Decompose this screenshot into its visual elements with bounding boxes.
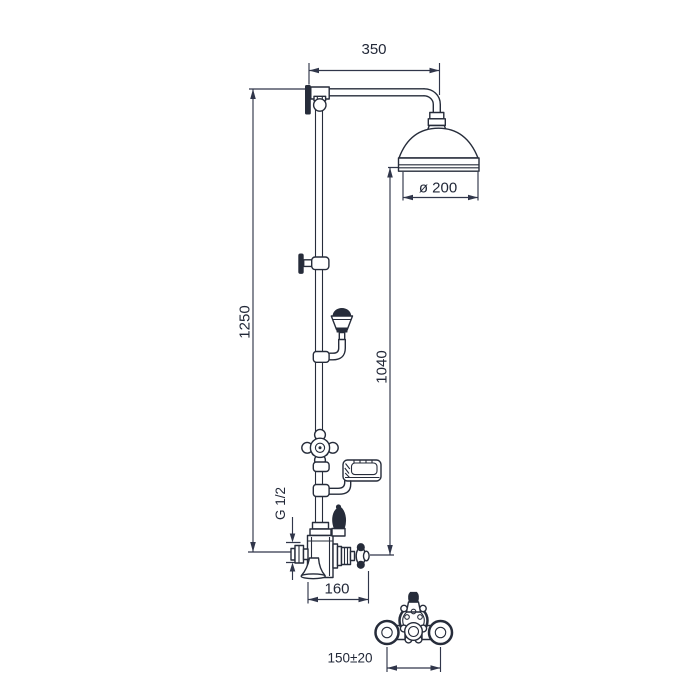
shower-head-dome — [399, 128, 478, 158]
temperature-handle-side — [342, 548, 351, 565]
label-head-to-valve: 1040 — [374, 350, 391, 383]
wall-elbow-left — [376, 621, 399, 644]
wall-bracket — [298, 254, 329, 274]
holder-cap — [333, 309, 350, 316]
mixer-valve-side — [291, 504, 369, 578]
soap-dish-union — [313, 485, 329, 497]
dimension-head-to-valve: 1040 — [370, 168, 400, 556]
label-arm-reach: 350 — [361, 41, 386, 58]
lever-base — [332, 529, 345, 537]
shower-system-diagram: 350 ø 200 1250 1040 G 1/2 160 150±20 — [0, 0, 700, 700]
dimension-total-height: 1250 — [237, 89, 306, 552]
label-valve-projection: 160 — [324, 581, 349, 598]
shower-arm — [305, 85, 447, 134]
label-inlet-spacing: 150±20 — [328, 651, 373, 666]
ball-joint — [314, 99, 326, 111]
shower-head — [399, 128, 480, 171]
label-head-diameter: ø 200 — [419, 180, 457, 197]
temperature-handle-front — [405, 623, 423, 641]
swivel-nut — [430, 113, 444, 119]
diverter-union — [313, 462, 329, 472]
wall-flange — [305, 85, 311, 115]
dimension-head-diameter: ø 200 — [403, 172, 478, 201]
label-connection-thread: G 1/2 — [273, 487, 288, 520]
lever-handle-front — [409, 593, 419, 603]
holder-union — [313, 352, 329, 363]
lever-handle-side — [333, 508, 346, 529]
technical-drawing: 350 ø 200 1250 1040 G 1/2 160 150±20 — [0, 0, 700, 700]
label-total-height: 1250 — [237, 305, 254, 338]
dimension-inlet-spacing: 150±20 — [328, 647, 441, 672]
diverter-handle — [302, 429, 338, 471]
dimension-thread: G 1/2 — [273, 487, 301, 580]
mixer-valve-front — [376, 593, 453, 645]
wall-elbow-right — [429, 621, 452, 644]
